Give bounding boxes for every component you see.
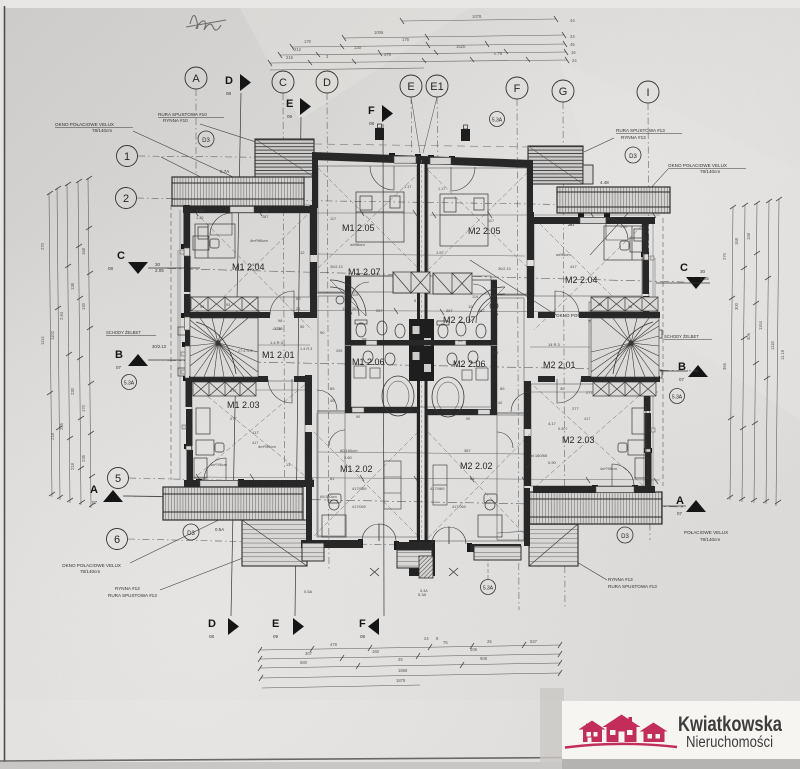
svg-text:Nieruchomości: Nieruchomości xyxy=(686,734,773,751)
svg-text:Kwiatkowska: Kwiatkowska xyxy=(678,712,783,736)
